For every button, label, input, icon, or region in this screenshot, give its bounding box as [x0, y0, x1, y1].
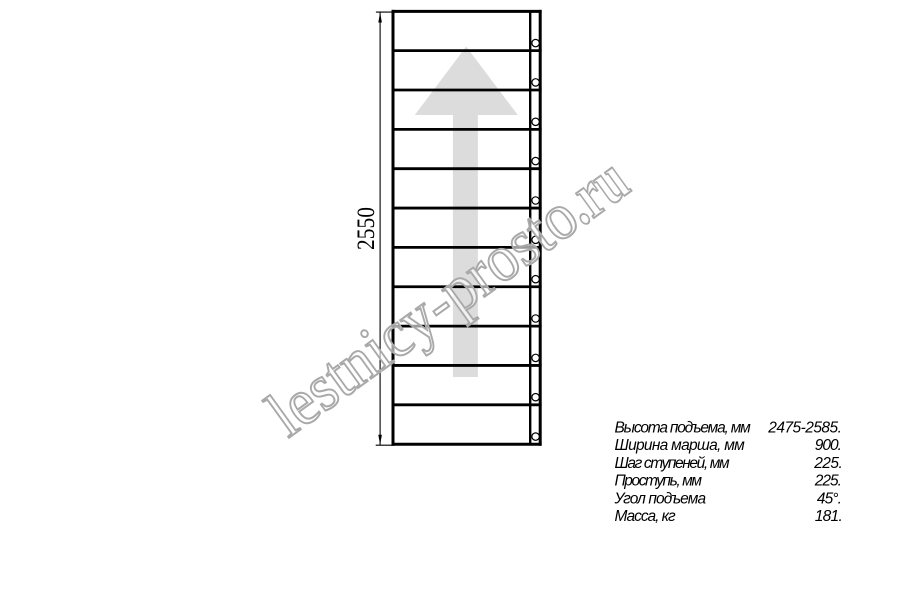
svg-text:Высота подъема, мм: Высота подъема, мм: [615, 420, 752, 437]
svg-text:Угол подъема: Угол подъема: [614, 490, 707, 507]
svg-text:900.: 900.: [815, 437, 842, 454]
svg-text:Шаг ступеней, мм: Шаг ступеней, мм: [615, 455, 731, 472]
svg-text:Масса, кг: Масса, кг: [615, 508, 676, 525]
svg-text:225.: 225.: [814, 473, 842, 490]
svg-text:2550: 2550: [353, 207, 380, 250]
svg-text:Ширина марша, мм: Ширина марша, мм: [615, 437, 746, 454]
svg-text:225.: 225.: [813, 455, 843, 472]
svg-text:Проступь, мм: Проступь, мм: [615, 473, 703, 490]
svg-text:2475-2585.: 2475-2585.: [767, 420, 842, 437]
svg-text:45°.: 45°.: [817, 490, 842, 507]
svg-text:181.: 181.: [815, 508, 843, 525]
